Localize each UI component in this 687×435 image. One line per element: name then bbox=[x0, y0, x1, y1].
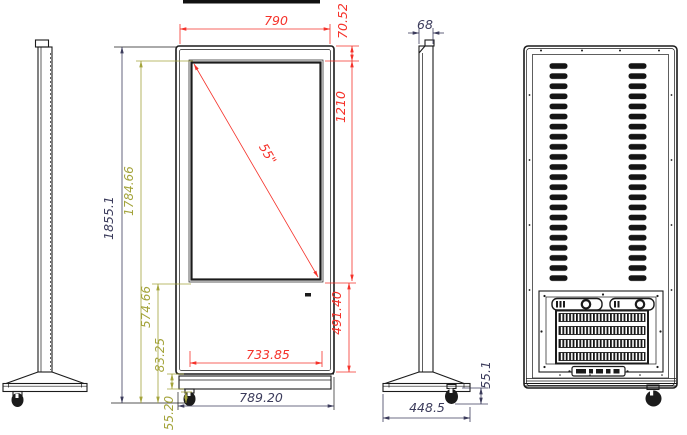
cabinet-inner-line bbox=[527, 49, 675, 386]
vent-grille bbox=[556, 311, 648, 364]
dim-front-screen-width: 733.85 bbox=[246, 347, 290, 362]
dim-side-base-height: 55.1 bbox=[478, 361, 493, 389]
dimension-screen-width: 733.85 bbox=[190, 347, 322, 367]
base-plate bbox=[383, 372, 470, 392]
connector-panel bbox=[568, 367, 628, 377]
dim-front-top-bezel: 70.52 bbox=[335, 3, 350, 39]
dim-front-screen-top-height: 1784.66 bbox=[122, 166, 136, 216]
dim-front-screen-height: 1210 bbox=[333, 91, 348, 123]
dimension-lower-panel-height: 491.40 bbox=[325, 283, 356, 372]
dim-side-base-depth: 448.5 bbox=[409, 400, 445, 415]
handle-cutout-right bbox=[610, 299, 654, 311]
back-view bbox=[524, 46, 677, 407]
dim-front-caster-height: 55.20 bbox=[162, 395, 176, 430]
technical-drawing-kiosk: 790 70.52 1210 55" 491.40 733.85 bbox=[0, 0, 687, 435]
cabinet-outline bbox=[524, 46, 677, 388]
front-view: 790 70.52 1210 55" 491.40 733.85 bbox=[101, 3, 359, 430]
dim-front-screen-bottom-height: 574.66 bbox=[139, 286, 153, 328]
dim-side-thickness: 68 bbox=[417, 17, 433, 32]
dim-front-overall-height: 1855.1 bbox=[101, 196, 116, 240]
side-view-left bbox=[3, 40, 87, 407]
base-plate bbox=[3, 372, 87, 392]
side-view-right: 68 448.5 55.1 bbox=[383, 17, 493, 422]
top-cap bbox=[36, 40, 49, 47]
ir-sensor bbox=[305, 293, 311, 297]
column-body bbox=[419, 46, 433, 372]
dimension-overall-height: 1855.1 bbox=[101, 47, 186, 403]
handle-cutout-left bbox=[552, 299, 602, 311]
bottom-plinth bbox=[176, 374, 334, 389]
dim-front-top-width: 790 bbox=[264, 13, 288, 28]
top-chamfer bbox=[419, 46, 425, 53]
vent-louvers-right bbox=[628, 62, 647, 284]
access-panel bbox=[539, 291, 663, 376]
caster-wheel bbox=[184, 389, 196, 406]
caster-wheel bbox=[445, 385, 458, 405]
vent-louvers-left bbox=[549, 62, 568, 284]
dimension-bottom-width: 789.20 bbox=[178, 377, 334, 410]
dimension-screen-height: 1210 bbox=[333, 61, 352, 281]
dim-front-bottom-width: 789.20 bbox=[239, 390, 283, 405]
column-body bbox=[38, 47, 52, 372]
top-border-fragment bbox=[183, 0, 320, 4]
dim-front-lower-height: 491.40 bbox=[329, 291, 344, 335]
caster-wheel bbox=[12, 392, 24, 408]
dimension-top-width: 790 bbox=[180, 13, 330, 44]
dim-front-plinth-height: 83.25 bbox=[153, 338, 167, 372]
